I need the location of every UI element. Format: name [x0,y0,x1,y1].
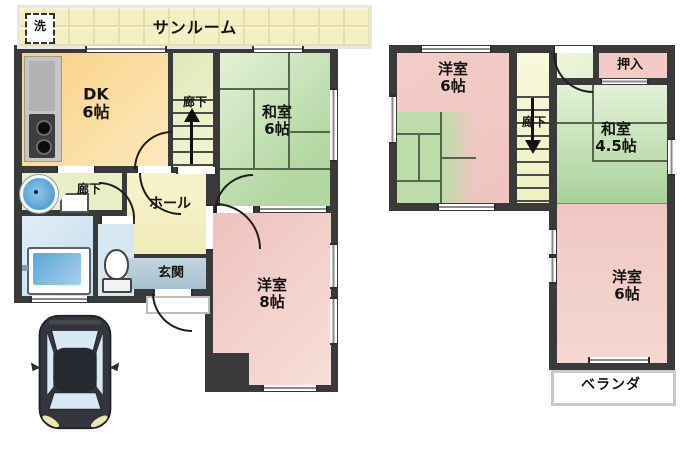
genkan-label: 玄関 [158,267,184,282]
window [668,138,675,176]
stove-burner [36,139,52,155]
stairs-up-arrow [190,120,193,164]
tatami-line [397,180,440,182]
dk-label: DK 6帖 [82,86,109,123]
window [30,296,89,302]
tatami-line [440,157,476,159]
window [85,46,167,52]
window [420,46,492,52]
stove-burner [36,120,52,136]
sliding-door [600,79,649,84]
sliding-door [437,204,496,210]
door-arc-genkan [152,293,192,332]
toilet-tank [102,278,132,293]
car-icon [30,302,120,442]
stairs-down-arrowhead [525,140,541,154]
window [262,385,318,391]
corridor-left-label: 廊下 [77,183,101,197]
wall-yoshitsu8-notch [213,353,249,385]
window [252,46,304,52]
tatami-line [418,133,420,180]
toilet-bowl [104,249,129,280]
door-gap [206,204,213,251]
washitsu6-label: 和室 6帖 [262,104,292,139]
door-gap [176,167,217,174]
door-gap [553,46,595,53]
window [330,88,337,162]
window [549,256,556,284]
kitchen-sink [29,61,55,111]
hall-label: ホール [149,196,191,212]
oshiire-label: 押入 [617,59,643,74]
tatami-line [288,131,330,133]
wash-basin [20,175,58,213]
stairs-1f-label: 廊下 [183,96,207,110]
bathtub-tap [22,265,28,271]
door-gap [56,166,96,173]
sunroom-label: サンルーム [153,19,238,37]
stairs-up-arrowhead [184,108,200,122]
tatami-line [592,160,667,162]
washitsu45-label: 和室 4.5帖 [595,121,637,156]
window [330,243,337,289]
yoshitsu6-upper-label: 洋室 6帖 [438,61,468,96]
yoshitsu6-lower-label: 洋室 6帖 [612,269,642,304]
tatami-line [253,88,255,170]
window [588,357,650,363]
window [389,95,396,144]
window [549,228,556,256]
window [330,297,337,345]
yoshitsu8-label: 洋室 8帖 [257,277,287,312]
veranda-label: ベランダ [581,377,641,393]
tatami-line [220,168,330,170]
stairs-2f-label: 廊下 [522,116,546,130]
washer-label: 洗 [34,20,46,34]
basin-drain [34,190,38,194]
tatami-line [592,122,594,162]
sliding-door [258,206,328,212]
floor-plan: 洗 サンルーム [0,0,686,463]
bathtub-basin [33,253,81,285]
